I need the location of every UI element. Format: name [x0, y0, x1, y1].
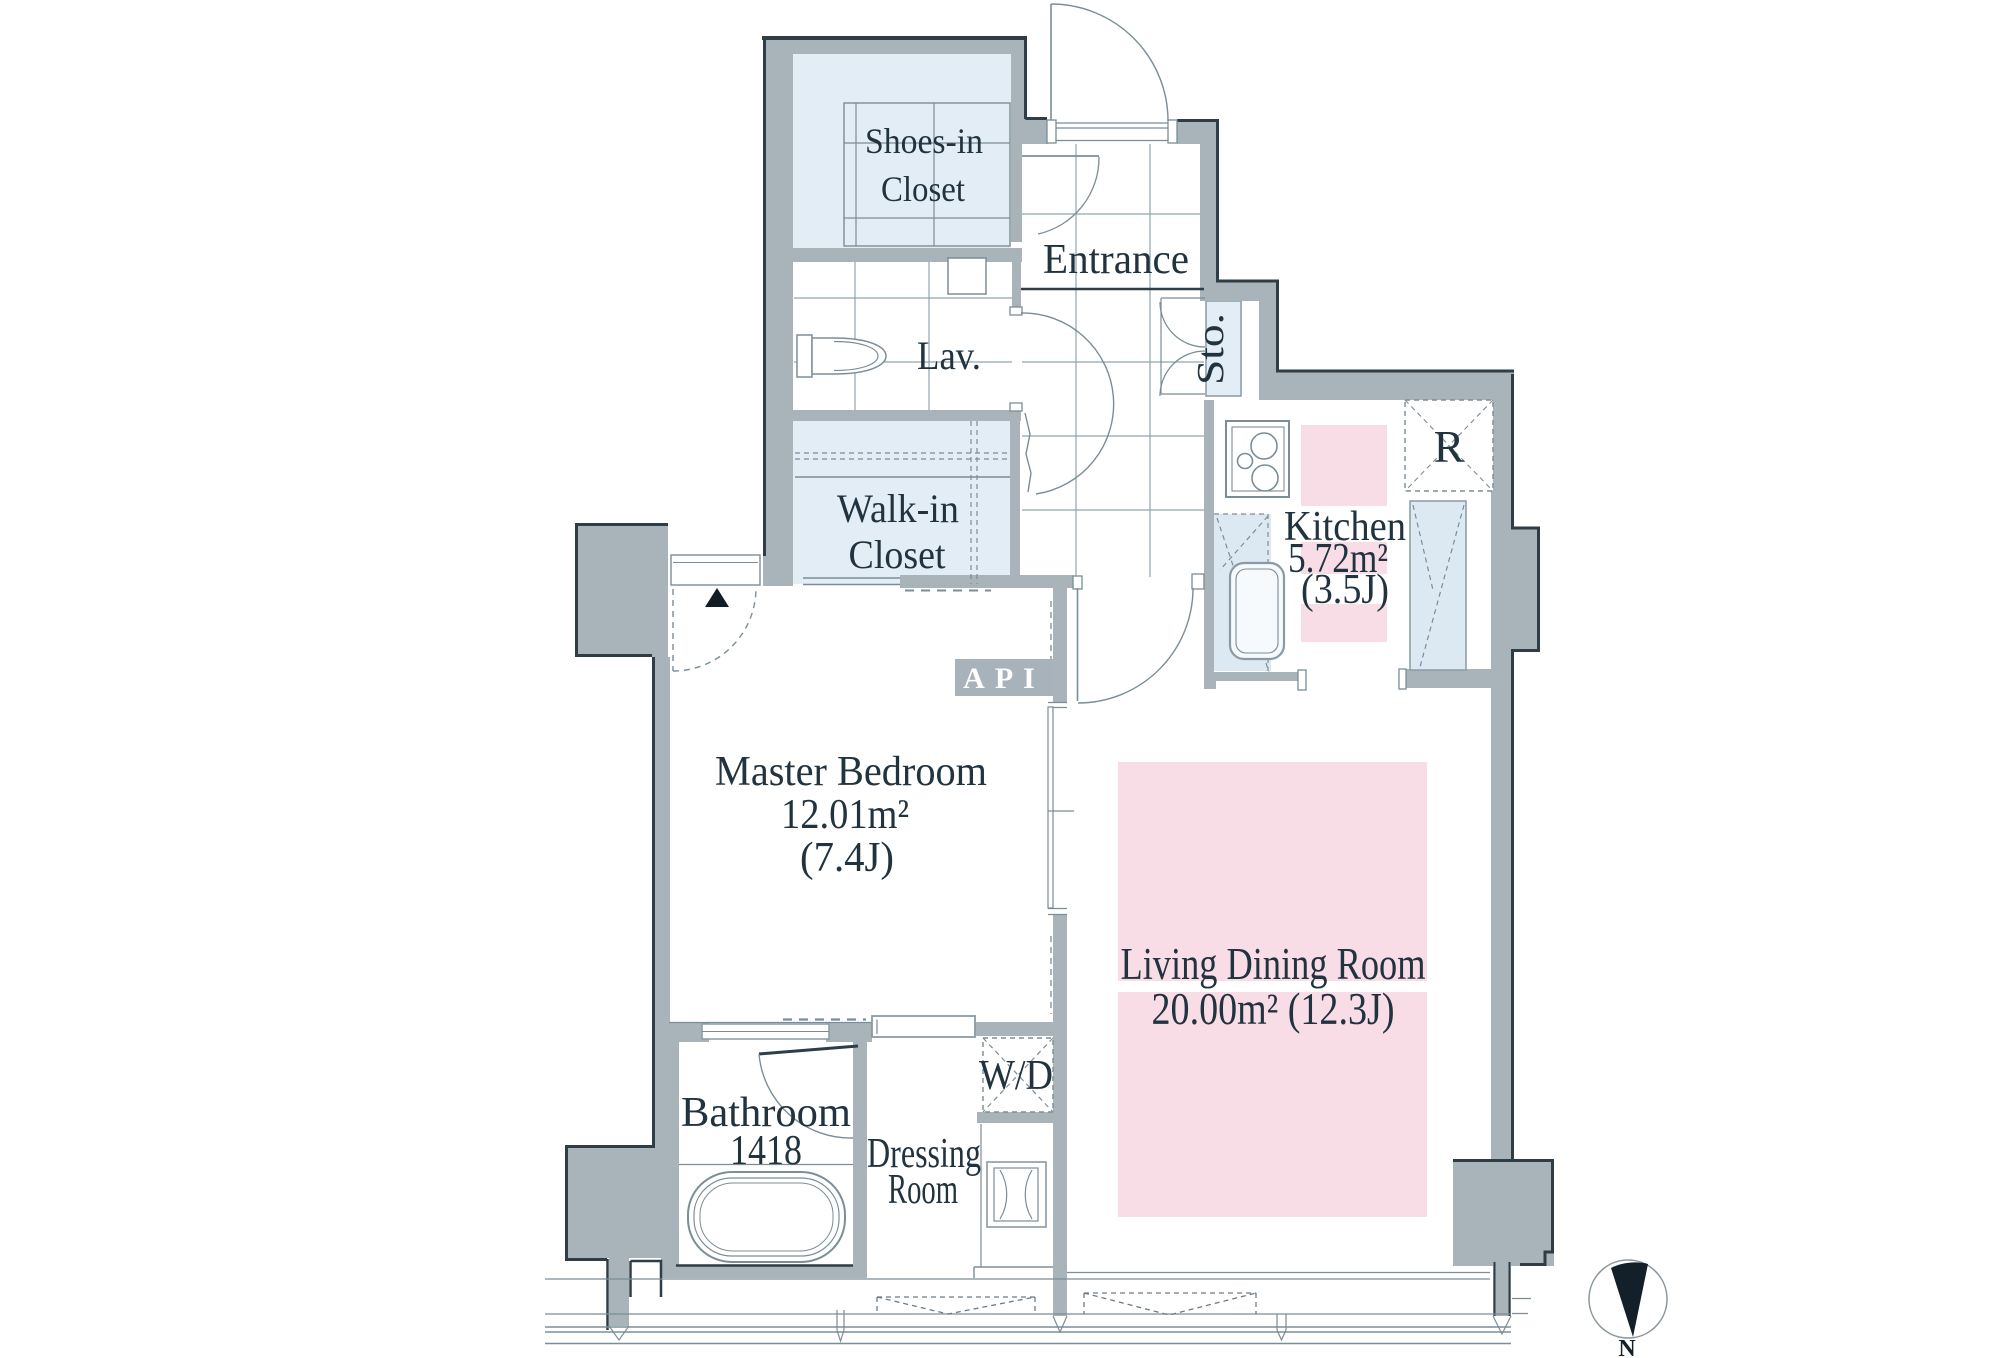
svg-text:N: N — [1618, 1336, 1636, 1358]
svg-text:(7.4J): (7.4J) — [800, 835, 894, 881]
svg-text:API: API — [963, 662, 1045, 695]
svg-text:1418: 1418 — [730, 1128, 802, 1174]
svg-text:Living Dining Room: Living Dining Room — [1121, 939, 1426, 989]
svg-text:Shoes-in: Shoes-in — [865, 121, 983, 161]
svg-text:W/D: W/D — [979, 1053, 1053, 1099]
svg-text:12.01m²: 12.01m² — [781, 792, 909, 838]
svg-text:Closet: Closet — [881, 169, 965, 209]
svg-text:Walk-in: Walk-in — [837, 486, 959, 531]
svg-text:R: R — [1434, 421, 1465, 472]
svg-text:(3.5J): (3.5J) — [1301, 567, 1389, 613]
svg-text:20.00m² (12.3J): 20.00m² (12.3J) — [1152, 984, 1395, 1034]
svg-text:Entrance: Entrance — [1043, 237, 1189, 283]
svg-text:Closet: Closet — [849, 532, 946, 577]
svg-text:Lav.: Lav. — [917, 333, 981, 378]
svg-text:Sto.: Sto. — [1190, 313, 1232, 385]
svg-text:Room: Room — [888, 1167, 958, 1213]
svg-text:Master Bedroom: Master Bedroom — [715, 749, 987, 795]
